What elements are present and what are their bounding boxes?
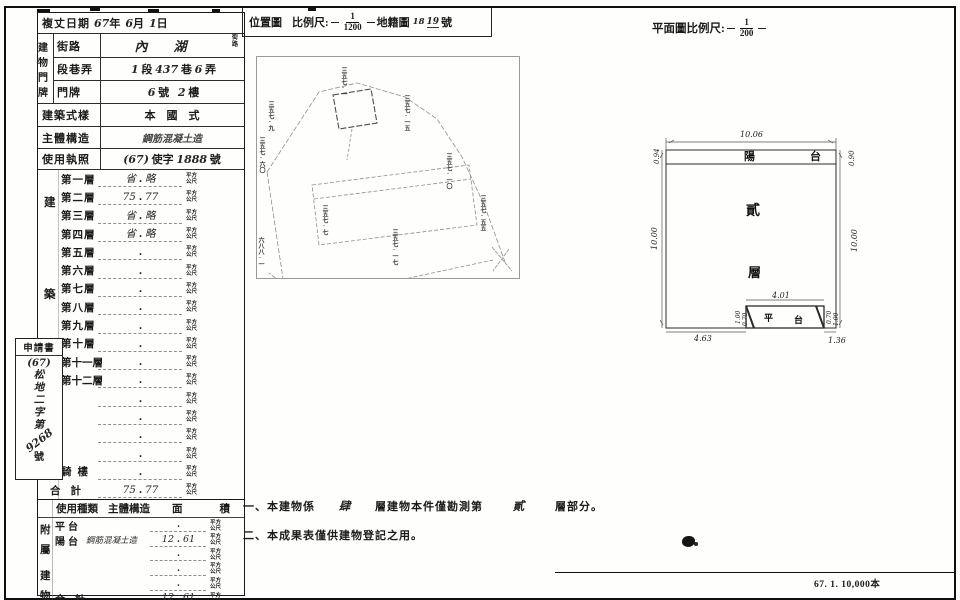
- attached-row: 平台.平方公尺: [38, 518, 244, 533]
- street-suffix: 街路: [232, 35, 242, 48]
- area-value: .: [98, 446, 182, 462]
- floor-row: .平方公尺: [38, 444, 244, 462]
- unit-label: 平方公尺: [186, 246, 201, 258]
- attached-label: 平台: [38, 518, 86, 533]
- unit-label: 平方公尺: [186, 320, 201, 332]
- unit-label: 平方公尺: [186, 356, 201, 368]
- unit-label: 平方公尺: [186, 393, 201, 405]
- floor-label: 第七層: [38, 281, 98, 296]
- floor-label: 第八層: [38, 300, 98, 315]
- dim-platform-r1: 0.70: [826, 311, 833, 324]
- scanned-survey-form: 複丈日期 67 年 6 月 1 日 建物門牌 街路 內湖 街路 段巷弄: [0, 0, 960, 600]
- application-title: 申請書: [16, 339, 62, 356]
- floor-label: 第九層: [38, 318, 98, 333]
- survey-month: 6: [125, 17, 133, 30]
- attached-row: 陽台鋼筋混凝土造12.61平方公尺: [38, 533, 244, 548]
- structure-value: 鋼筋混凝土造: [100, 130, 244, 145]
- lot-number: 三五七-一〇: [445, 153, 451, 189]
- unit-label: 平方公尺: [210, 549, 225, 561]
- dash: [727, 28, 735, 29]
- note-2: 二、本成果表僅供建物登記之用。: [243, 527, 603, 543]
- license-suffix: 號: [210, 154, 221, 166]
- cadastral-sheet-sup: 18: [413, 17, 425, 27]
- floor-row: 第六層.平方公尺: [38, 261, 244, 279]
- floor-row: 第四層省.略平方公尺: [38, 225, 244, 243]
- floor-row: 第二層75.77平方公尺: [38, 188, 244, 206]
- ink-blot: [682, 536, 695, 547]
- ink-blot-small: [694, 542, 698, 546]
- scale-numerator: 1: [346, 12, 359, 23]
- unit-label: 平方公尺: [210, 578, 225, 590]
- floor-row: 第七層.平方公尺: [38, 280, 244, 298]
- area-value: 省.略: [98, 171, 182, 187]
- unit-label: 平方公尺: [186, 429, 201, 441]
- floor-label: 第五層: [38, 245, 98, 260]
- dim-top: 10.06: [740, 130, 763, 139]
- application-year: (67): [27, 358, 50, 369]
- unit-label: 平方公尺: [186, 228, 201, 240]
- dim-right: 10.00: [850, 229, 859, 252]
- structure-header: 主體構造: [108, 501, 170, 516]
- decimal-point: .: [174, 519, 183, 530]
- area-frac: 77: [145, 191, 175, 203]
- year-unit: 年: [109, 15, 120, 31]
- decimal-point: .: [136, 281, 145, 296]
- unit-label: 平方公尺: [186, 265, 201, 277]
- platform-label-char2: 台: [794, 313, 803, 326]
- area-frac: 略: [145, 208, 175, 223]
- unit-label: 平方公尺: [186, 411, 201, 423]
- floor-label: 第一層: [38, 172, 98, 187]
- print-run-imprint: 67. 1. 10,000本: [814, 576, 880, 590]
- decimal-point: .: [136, 299, 145, 314]
- form-sheet: 複丈日期 67 年 6 月 1 日 建物門牌 街路 內湖 街路 段巷弄: [4, 6, 956, 600]
- floor-row: .平方公尺: [38, 408, 244, 426]
- building-data-table: 複丈日期 67 年 6 月 1 日 建物門牌 街路 內湖 街路 段巷弄: [37, 12, 245, 596]
- section-row: 段巷弄 1 段 437 巷 6 弄: [54, 58, 244, 81]
- unit-label: 平方公尺: [186, 210, 201, 222]
- area-header-left: 面: [172, 501, 183, 516]
- plan-scale-numerator: 1: [740, 18, 753, 29]
- floor-row: 第一層省.略平方公尺: [38, 170, 244, 188]
- style-label: 建築式樣: [38, 107, 100, 123]
- unit-label: 平方公尺: [186, 301, 201, 313]
- section-label: 段巷弄: [54, 61, 103, 77]
- location-map-sketch: [257, 57, 519, 278]
- cadastral-sheet-no: 19: [427, 17, 440, 28]
- decimal-point: .: [136, 171, 145, 186]
- cadastral-label: 地籍圖: [377, 14, 410, 30]
- attached-area: .: [150, 563, 206, 576]
- lot-number: 三五七-一七: [391, 229, 397, 265]
- lot-number: 三五七-五五: [479, 195, 485, 231]
- decimal-point: .: [174, 578, 183, 589]
- survey-year: 67: [94, 17, 109, 30]
- license-label: 使用執照: [38, 151, 100, 167]
- area-header-right: 積: [220, 501, 231, 516]
- month-unit: 月: [133, 15, 144, 31]
- area-value: .: [98, 263, 182, 279]
- area-value: .: [98, 299, 182, 315]
- lot-number: 三五七-六〇: [258, 137, 264, 173]
- plan-scale-denominator: 200: [740, 29, 754, 39]
- area-value: 省.略: [98, 226, 182, 242]
- floor-row: 第十層.平方公尺: [38, 335, 244, 353]
- area-value: .: [98, 281, 182, 297]
- attached-area: .: [150, 519, 206, 532]
- attached-total-row: 合計12.61平方公尺: [38, 591, 244, 600]
- floor-unit: 樓: [188, 87, 199, 99]
- floor-word-char: 層: [748, 262, 761, 281]
- area-value: .: [98, 464, 182, 480]
- survey-day: 1: [149, 17, 157, 30]
- day-unit: 日: [157, 15, 168, 31]
- floor-label: 第二層: [38, 190, 98, 205]
- address-block: 建物門牌 街路 內湖 街路 段巷弄 1 段 437 巷: [38, 34, 244, 104]
- dash: [331, 22, 339, 23]
- unit-label: 平方公尺: [186, 448, 201, 460]
- scale-label: 比例尺:: [292, 14, 329, 30]
- floor-row: 第五層.平方公尺: [38, 243, 244, 261]
- dim-platform-l1: 1.00: [735, 311, 742, 324]
- lot-number: 三五七-七: [321, 205, 327, 235]
- door-number: 6: [148, 86, 156, 99]
- notes: 一、本建物係 肆 層建物本件僅勘測第 貳 層部分。 二、本成果表僅供建物登記之用…: [243, 498, 603, 543]
- decimal-point: .: [136, 482, 145, 497]
- area-value: 省.略: [98, 208, 182, 224]
- scan-artifact: [90, 8, 100, 11]
- floor-plan: 10.06 0.94 0.90 10.00 10.00 陽 台 貳 層 4.01…: [636, 128, 871, 353]
- area-value: .: [98, 244, 182, 260]
- floor-row: 第八層.平方公尺: [38, 298, 244, 316]
- lane-unit: 巷: [181, 64, 192, 76]
- unit-label: 平方公尺: [186, 466, 201, 478]
- plan-scale-fraction: 1 200: [740, 18, 754, 38]
- location-map: 三五七-一 三五七-一五 三五七-九 三五七-六〇 六八八-一 三五七-一七 三…: [256, 56, 520, 279]
- street-row: 街路 內湖 街路: [54, 34, 244, 58]
- area-int: 省: [98, 208, 136, 223]
- street-label: 街路: [54, 38, 103, 54]
- area-value: .: [98, 391, 182, 407]
- floor-row: 第十一層.平方公尺: [38, 353, 244, 371]
- note1-mid: 層建物本件僅勘測第: [375, 501, 483, 513]
- decimal-point: .: [174, 592, 183, 600]
- dim-right-top: 0.90: [848, 150, 856, 166]
- area-header: 面 積: [170, 501, 244, 516]
- area-int: 12: [150, 534, 174, 545]
- section-value: 1 段 437 巷 6 弄: [103, 61, 244, 77]
- license-value: (67) 使字 1888 號: [100, 151, 244, 167]
- decimal-point: .: [174, 548, 183, 559]
- section-unit: 段: [141, 64, 152, 76]
- cadastral-sheet-unit: 號: [441, 14, 452, 30]
- unit-label: 平方公尺: [210, 520, 225, 532]
- area-int: 75: [98, 191, 136, 203]
- floor-row: 第九層.平方公尺: [38, 316, 244, 334]
- decimal-point: .: [136, 208, 145, 223]
- area-int: 省: [98, 171, 136, 186]
- attached-area: .: [150, 578, 206, 591]
- area-value: 75.77: [98, 482, 182, 498]
- unit-label: 平方公尺: [186, 173, 201, 185]
- dim-left-top: 0.94: [653, 148, 661, 164]
- dim-bottom-left: 4.63: [694, 334, 712, 343]
- divider: [100, 58, 101, 80]
- decimal-point: .: [136, 446, 145, 461]
- license-year: (67): [123, 153, 149, 166]
- floor-row: .平方公尺: [38, 390, 244, 408]
- door-row: 門牌 6 號 2 樓: [54, 81, 244, 103]
- unit-label: 平方公尺: [210, 593, 225, 600]
- decimal-point: .: [136, 189, 145, 204]
- note1-pre: 一、本建物係: [243, 501, 315, 513]
- lot-number: 六八八-一: [257, 237, 263, 267]
- area-frac: 略: [145, 171, 175, 186]
- license-number: 1888: [176, 153, 207, 166]
- lane-number: 437: [155, 63, 178, 76]
- dim-left: 10.00: [650, 227, 659, 250]
- area-value: .: [98, 336, 182, 352]
- area-int: 12: [150, 592, 174, 600]
- area-value: 75.77: [98, 189, 182, 205]
- address-group-label: 建物門牌: [38, 34, 54, 103]
- total-row: 合計75.77平方公尺: [38, 481, 244, 499]
- attached-header: 使用種類 主體構造 面 積: [38, 500, 244, 518]
- decimal-point: .: [136, 263, 145, 278]
- application-office-code: 松地二字第: [32, 369, 47, 432]
- building-area-block: 建 築 面 積 第一層省.略平方公尺 第二層75.77平方公尺 第三層省.略平方…: [38, 170, 244, 499]
- note1-post: 層部分。: [555, 501, 603, 513]
- floor-plan-header: 平面圖比例尺: 1 200: [652, 18, 768, 38]
- area-frac: 61: [183, 534, 203, 545]
- attached-area: 12.61: [150, 534, 206, 547]
- attached-row: .平方公尺: [38, 562, 244, 577]
- lot-number: 三五七-一: [340, 67, 346, 97]
- note1-surveyed-floor: 貳: [513, 498, 526, 514]
- decimal-point: .: [136, 427, 145, 442]
- address-rows: 街路 內湖 街路 段巷弄 1 段 437 巷 6 弄: [54, 34, 244, 103]
- dim-platform-r2: 1.00: [833, 313, 840, 326]
- decimal-point: .: [136, 409, 145, 424]
- arcade-row: 騎樓.平方公尺: [38, 463, 244, 481]
- unit-label: 平方公尺: [186, 191, 201, 203]
- license-word: 使字: [152, 154, 174, 166]
- survey-date-row: 複丈日期 67 年 6 月 1 日: [38, 13, 244, 34]
- note1-total-floors: 肆: [339, 498, 352, 514]
- unit-label: 平方公尺: [210, 534, 225, 546]
- decimal-point: .: [136, 372, 145, 387]
- door-label: 門牌: [54, 84, 103, 100]
- dim-bottom-right: 1.36: [828, 336, 846, 345]
- area-int: 省: [98, 226, 136, 241]
- section-number: 1: [131, 63, 139, 76]
- attached-structure: 鋼筋混凝土造: [86, 534, 150, 546]
- area-value: .: [98, 409, 182, 425]
- decimal-point: .: [174, 563, 183, 574]
- total-label: 合計: [38, 483, 98, 498]
- divider: [100, 81, 101, 103]
- attached-row: .平方公尺: [38, 577, 244, 592]
- area-value: .: [98, 318, 182, 334]
- survey-date-label: 複丈日期: [38, 15, 90, 31]
- decimal-point: .: [136, 464, 145, 479]
- sheet-bottom-rule: [555, 572, 954, 573]
- applicant-number-block: 申請書 (67) 松地二字第 9268 號: [15, 338, 63, 480]
- attached-area: .: [150, 548, 206, 561]
- divider: [100, 34, 101, 57]
- area-frac: 略: [145, 226, 175, 241]
- decimal-point: .: [136, 244, 145, 259]
- unit-label: 平方公尺: [186, 338, 201, 350]
- floor-number-char: 貳: [746, 200, 760, 220]
- dim-platform-top: 4.01: [772, 291, 790, 300]
- unit-label: 平方公尺: [186, 374, 201, 386]
- area-value: .: [98, 372, 182, 388]
- decimal-point: .: [136, 318, 145, 333]
- dash: [367, 22, 375, 23]
- dim-platform-l2: 0.70: [742, 313, 749, 326]
- floor-row: 第十二層.平方公尺: [38, 371, 244, 389]
- location-map-header: 位置圖 比例尺: 1 1200 地籍圖 18 19 號: [242, 8, 492, 37]
- area-value: .: [98, 427, 182, 443]
- lot-number: 三五七-九: [267, 101, 273, 131]
- area-int: 75: [98, 484, 136, 496]
- unit-label: 平方公尺: [210, 563, 225, 575]
- floor-label: 第四層: [38, 227, 98, 242]
- decimal-point: .: [136, 336, 145, 351]
- platform-label-char1: 平: [764, 311, 773, 324]
- attached-row: .平方公尺: [38, 548, 244, 563]
- style-value: 本 國 式: [100, 107, 244, 123]
- unit-label: 平方公尺: [186, 283, 201, 295]
- attached-label: 陽台: [38, 533, 86, 548]
- license-row: 使用執照 (67) 使字 1888 號: [38, 149, 244, 170]
- attached-structures-block: 附 屬 建 物 使用種類 主體構造 面 積 平台.平方公尺 陽台鋼筋混凝土造12…: [38, 499, 244, 600]
- decimal-point: .: [174, 534, 183, 545]
- floor-number: 2: [178, 86, 186, 99]
- area-value: .: [98, 354, 182, 370]
- divider: [100, 104, 101, 126]
- door-unit: 號: [158, 87, 169, 99]
- floor-row: 第三層省.略平方公尺: [38, 207, 244, 225]
- decimal-point: .: [136, 226, 145, 241]
- street-value: 內湖: [103, 36, 244, 55]
- scale-denominator: 1200: [344, 23, 362, 33]
- alley-number: 6: [195, 63, 203, 76]
- area-frac: 61: [183, 592, 203, 600]
- divider: [100, 149, 101, 169]
- balcony-label: 陽 台: [744, 148, 843, 164]
- area-frac: 77: [145, 484, 175, 496]
- floor-plan-title: 平面圖比例尺:: [652, 20, 725, 36]
- structure-label: 主體構造: [38, 130, 100, 146]
- decimal-point: .: [136, 354, 145, 369]
- unit-label: 平方公尺: [186, 484, 201, 496]
- floor-label: 第六層: [38, 263, 98, 278]
- floor-label: 第三層: [38, 208, 98, 223]
- style-row: 建築式樣 本 國 式: [38, 104, 244, 127]
- dash: [758, 28, 766, 29]
- decimal-point: .: [136, 391, 145, 406]
- attached-area: 12.61: [150, 592, 206, 600]
- attached-total-label: 合計: [38, 591, 86, 600]
- use-type-header: 使用種類: [38, 501, 108, 516]
- scale-fraction: 1 1200: [344, 12, 362, 32]
- lot-number: 三五七-一五: [403, 95, 409, 131]
- location-map-title: 位置圖: [249, 14, 282, 30]
- door-value: 6 號 2 樓: [103, 84, 244, 100]
- structure-row: 主體構造 鋼筋混凝土造: [38, 127, 244, 149]
- floor-row: .平方公尺: [38, 426, 244, 444]
- note-1: 一、本建物係 肆 層建物本件僅勘測第 貳 層部分。: [243, 498, 603, 514]
- address-group-text: 建物門牌: [38, 39, 53, 99]
- alley-unit: 弄: [205, 64, 216, 76]
